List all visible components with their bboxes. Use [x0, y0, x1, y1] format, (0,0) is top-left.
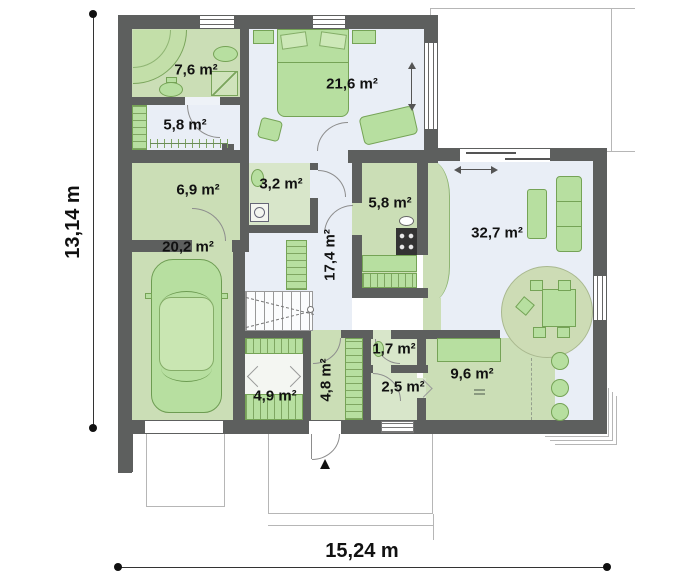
sofa-cushion-line [556, 201, 582, 202]
wardrobe-icon [345, 338, 363, 420]
room-label-bedroom: 21,6 m² [326, 76, 378, 93]
wardrobe-icon [132, 105, 147, 150]
door-gap [311, 330, 341, 338]
dimension-line-horizontal [118, 567, 607, 568]
passage-floor [249, 150, 348, 163]
stool-icon [551, 352, 569, 370]
entrance-door-leaf [311, 434, 312, 459]
steps-icon [616, 396, 617, 445]
partition-dashed-line [531, 358, 532, 420]
chair-icon [558, 280, 571, 291]
steps-icon [555, 444, 616, 445]
porch-outline [268, 433, 433, 514]
stove-icon [396, 228, 417, 255]
entrance-door-gap [309, 421, 341, 434]
newel-post-icon [307, 306, 314, 313]
steps-icon [545, 436, 608, 437]
closet-icon [286, 240, 307, 290]
dimension-line-vertical [93, 14, 94, 428]
door-gap [185, 97, 220, 105]
floor-plan: ▲ 7,6 m² 5,8 m² 21,6 m² 6,9 m² 3,2 m² 20… [0, 0, 700, 574]
room-label-vestibule: 2,5 m² [381, 379, 424, 396]
wall [352, 288, 428, 298]
toilet-icon [159, 82, 183, 97]
arrow-left-icon [450, 166, 461, 174]
wall [417, 163, 428, 255]
desk-icon [437, 338, 501, 362]
steps-icon [608, 388, 609, 437]
door-gap [373, 330, 391, 339]
door-gap [373, 365, 391, 373]
room-label-garage: 20,2 m² [162, 239, 214, 256]
wall [243, 330, 311, 338]
arrow-up-icon [408, 58, 416, 69]
chair-icon [530, 280, 543, 291]
terrace-line [612, 8, 635, 9]
wall [118, 97, 240, 105]
coffee-table-icon [527, 189, 547, 239]
dimension-dot [603, 563, 611, 571]
nightstand-icon [352, 30, 376, 44]
room-label-upper-hallway: 5,8 m² [163, 117, 206, 134]
kitchen-cabinet-icon [362, 273, 417, 288]
dining-table-icon [542, 289, 576, 327]
garage-door-gap [145, 421, 223, 433]
vent-marks-icon [474, 393, 485, 395]
wall [240, 15, 249, 163]
driveway-outline [146, 433, 225, 507]
room-label-kitchen: 5,8 m² [368, 195, 411, 212]
dimension-label-width: 15,24 m [282, 540, 442, 564]
kitchen-counter-icon [362, 255, 417, 272]
window [200, 16, 234, 28]
entrance-arrow-icon: ▲ [317, 454, 334, 474]
wall [363, 330, 371, 420]
sofa-cushion-line [556, 226, 582, 227]
porch-line [268, 525, 433, 526]
door-gap [352, 203, 362, 235]
room-label-living: 32,7 m² [471, 225, 523, 242]
washing-machine-icon [254, 207, 265, 218]
bed-icon [277, 62, 349, 63]
room-label-toilet: 3,2 m² [259, 176, 302, 193]
room-label-wardrobe: 4,9 m² [253, 388, 296, 405]
stool-icon [551, 403, 569, 421]
dimension-dot [114, 563, 122, 571]
sink-icon [213, 46, 238, 62]
window [425, 43, 437, 129]
room-label-bathroom: 7,6 m² [174, 62, 217, 79]
window [594, 276, 606, 320]
window [313, 16, 345, 28]
wall [118, 15, 438, 29]
porch-line [433, 514, 434, 540]
sliding-door [460, 149, 550, 162]
wardrobe-icon [245, 338, 303, 354]
sliding-door-panel [505, 158, 550, 160]
nightstand-icon [253, 30, 274, 44]
wall [348, 150, 438, 163]
wall [240, 225, 318, 233]
room-label-hall: 17,4 m² [322, 229, 339, 281]
window-arrow-icon [411, 66, 412, 104]
room-label-small-wc: 1,7 m² [372, 341, 415, 358]
car-mirror-icon [221, 293, 228, 299]
arrow-right-icon [491, 166, 502, 174]
sliding-door-panel [466, 152, 516, 154]
room-label-entry: 4,8 m² [318, 358, 335, 401]
door-gap [310, 170, 318, 198]
dimension-dot [89, 424, 97, 432]
sliding-arrow-icon [457, 169, 491, 170]
entry-steps-icon [381, 421, 414, 433]
wall [417, 397, 426, 420]
wall [417, 339, 426, 367]
wall [303, 338, 311, 420]
dimension-label-height: 13,14 m [62, 157, 88, 287]
stool-icon [551, 379, 569, 397]
steps-icon [612, 392, 613, 441]
room-label-utility: 6,9 m² [176, 182, 219, 199]
chair-icon [557, 327, 570, 338]
terrace-outline [430, 8, 612, 152]
chair-icon [533, 327, 546, 338]
room-label-study: 9,6 m² [450, 366, 493, 383]
vent-marks-icon [474, 389, 485, 391]
kitchen-sink-icon [399, 216, 414, 226]
wall [118, 434, 133, 472]
car-mirror-icon [145, 293, 152, 299]
sofa-icon [556, 176, 582, 252]
terrace-line [612, 151, 635, 152]
hanger-rod-icon [150, 143, 228, 144]
car-cabin-icon [159, 297, 214, 371]
dimension-dot [89, 10, 97, 18]
steps-icon [550, 440, 612, 441]
arrow-down-icon [408, 104, 416, 115]
